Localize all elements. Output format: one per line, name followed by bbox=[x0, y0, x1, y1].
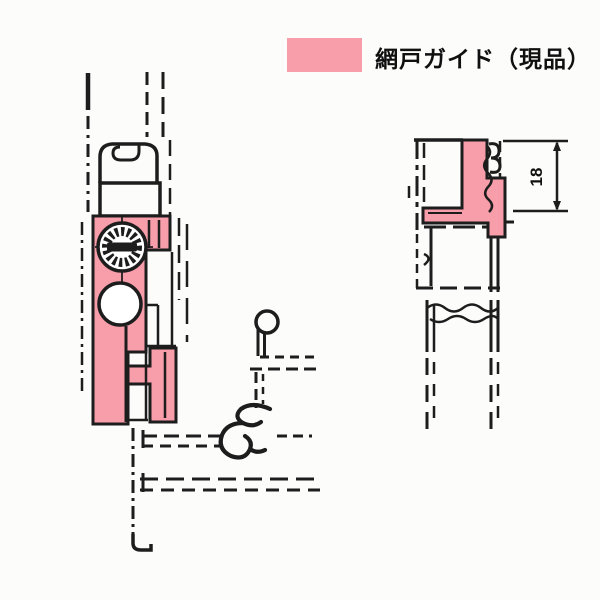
hook-profile-curl bbox=[113, 144, 139, 160]
screen-door-guide-profile bbox=[423, 140, 505, 237]
section-break-squiggle bbox=[430, 316, 498, 322]
cross-section-drawing: 18 bbox=[0, 0, 600, 600]
section-break-squiggle bbox=[427, 305, 498, 312]
screw-slot bbox=[107, 243, 137, 252]
dimension-arrow-icon bbox=[553, 201, 561, 211]
sash-detail-blob bbox=[424, 254, 429, 265]
channel-outline bbox=[100, 183, 160, 216]
technical-drawing-page: 網戸ガイド（現品） bbox=[0, 0, 600, 600]
rail-claw-outline bbox=[221, 405, 270, 457]
centerline-end-hook bbox=[133, 534, 151, 550]
dimension-arrow-icon bbox=[553, 141, 561, 151]
dimension-18: 18 bbox=[503, 141, 568, 211]
interlock-hook-outline bbox=[489, 144, 500, 173]
dimension-value: 18 bbox=[527, 168, 546, 187]
hook-profile-outline bbox=[100, 144, 157, 183]
screen-door-guide-tab bbox=[128, 348, 176, 422]
roller-circle bbox=[99, 283, 141, 325]
left-section-view bbox=[82, 72, 320, 550]
right-section-view: 18 bbox=[409, 139, 568, 432]
